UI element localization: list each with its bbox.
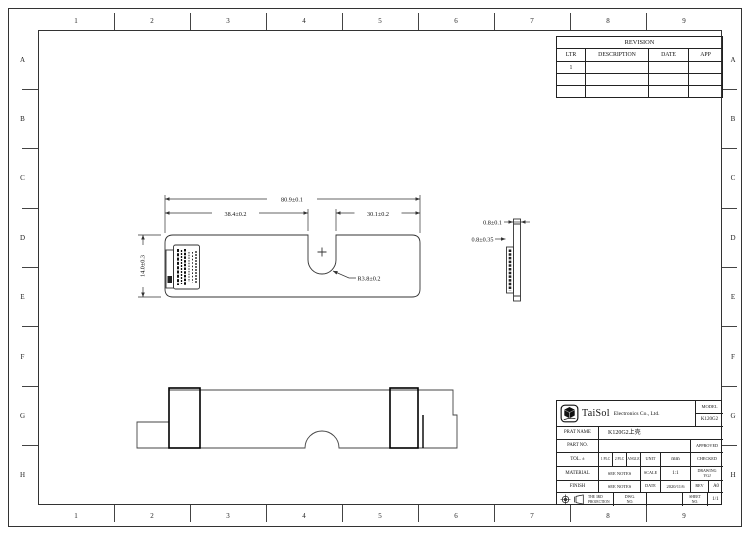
taisol-logo <box>560 404 579 423</box>
dim-height: 14.0±0.3 <box>139 255 146 277</box>
title-block: TaiSol Electronics Co., Ltd. MODEL K120G… <box>556 400 722 505</box>
drawing-cell: DRAWING YGJ <box>691 467 723 481</box>
side-segment-lines <box>514 224 521 296</box>
revision-cell <box>557 74 586 86</box>
part-name-label: PRAT NAME <box>557 427 599 440</box>
date-label: DATE <box>641 481 661 493</box>
side-profile <box>514 219 521 301</box>
revision-header-app: APP <box>689 49 723 62</box>
part-no-label: PART NO. <box>557 440 599 453</box>
front-view <box>137 388 457 448</box>
third-angle-projection-icon <box>560 494 586 505</box>
revision-header-description: DESCRIPTION <box>586 49 649 62</box>
model-label: MODEL <box>696 401 723 414</box>
revision-header-date: DATE <box>649 49 689 62</box>
dimension-lines <box>138 195 530 297</box>
rev-label: REV <box>691 481 709 493</box>
part-name-value: K120G2上壳 <box>599 427 723 440</box>
revision-cell <box>689 62 723 74</box>
dim-overall-width: 80.9±0.1 <box>281 196 303 203</box>
revision-cell <box>689 86 723 98</box>
company-suffix: Electronics Co., Ltd. <box>614 411 660 417</box>
finish-value: SEE NOTES <box>599 481 641 493</box>
front-outline <box>137 390 457 448</box>
material-label: MATERIAL <box>557 467 599 481</box>
center-mark <box>318 248 327 257</box>
sheet-label-text: SHEET NO. <box>688 495 702 504</box>
part-outline <box>165 235 420 297</box>
rev-value: A0 <box>709 481 723 493</box>
revision-row <box>557 74 723 86</box>
date-value: 2020/11/6 <box>661 481 691 493</box>
unit-value: mm <box>661 453 691 467</box>
dim-right-width: 30.1±0.2 <box>367 211 389 218</box>
sheet-background: 112233445566778899AABBCCDDEEFFGGHH <box>0 0 751 536</box>
projection-label: THE 3RD PROJECTION <box>588 495 610 504</box>
revision-cell <box>586 86 649 98</box>
projection-cell: THE 3RD PROJECTION <box>557 493 614 506</box>
front-left-boss <box>169 388 200 448</box>
scale-value: 1:1 <box>661 467 691 481</box>
sheet-label: SHEET NO. <box>683 493 708 506</box>
tol-1plc: 1 PLC <box>599 453 613 467</box>
material-value: SEE NOTES <box>599 467 641 481</box>
revision-cell <box>689 74 723 86</box>
revision-cell <box>586 62 649 74</box>
revision-cell <box>586 74 649 86</box>
part-no-value <box>599 440 691 453</box>
revision-row: 1 <box>557 62 723 74</box>
dim-inner-thickness: 0.8±0.35 <box>472 236 494 243</box>
drawing-value: YGJ <box>703 474 710 479</box>
dwg-no-label: DWG. NO. <box>614 493 647 506</box>
scale-label: SCALE <box>641 467 661 481</box>
tol-angle: ANGLE <box>627 453 641 467</box>
revision-table: REVISION LTR DESCRIPTION DATE APP 1 <box>556 36 723 98</box>
revision-cell <box>557 86 586 98</box>
model-value: K120G2 <box>696 414 723 427</box>
tolerance-label: TOL. ± <box>557 453 599 467</box>
company-name: TaiSol <box>582 408 610 420</box>
top-view <box>165 235 420 297</box>
connector-key <box>168 276 173 283</box>
sticker-print <box>178 249 196 285</box>
dim-left-width: 38.4±0.2 <box>225 211 247 218</box>
revision-cell <box>649 74 689 86</box>
dim-thickness: 0.8±0.1 <box>483 219 502 226</box>
tol-2plc: 2 PLC <box>613 453 627 467</box>
dim-notch-radius: R3.8±0.2 <box>358 275 381 282</box>
finish-label: FINISH <box>557 481 599 493</box>
drawing-sheet: { "frame": { "cols": ["1","2","3","4","5… <box>0 0 751 536</box>
revision-cell <box>649 86 689 98</box>
dwg-no-label-text: DWG. NO. <box>623 495 638 504</box>
sheet-value: 1/1 <box>708 493 723 506</box>
revision-title: REVISION <box>557 37 723 49</box>
unit-label: UNIT <box>641 453 661 467</box>
revision-cell <box>649 62 689 74</box>
company-cell: TaiSol Electronics Co., Ltd. <box>557 401 696 427</box>
radius-leader <box>333 271 356 278</box>
revision-cell: 1 <box>557 62 586 74</box>
side-view <box>507 219 521 301</box>
front-right-boss <box>390 388 418 448</box>
dwg-no-value <box>647 493 683 506</box>
checked-label: CHECKED <box>691 453 723 467</box>
approved-label: APPROVED <box>691 440 723 453</box>
revision-row <box>557 86 723 98</box>
revision-header-ltr: LTR <box>557 49 586 62</box>
